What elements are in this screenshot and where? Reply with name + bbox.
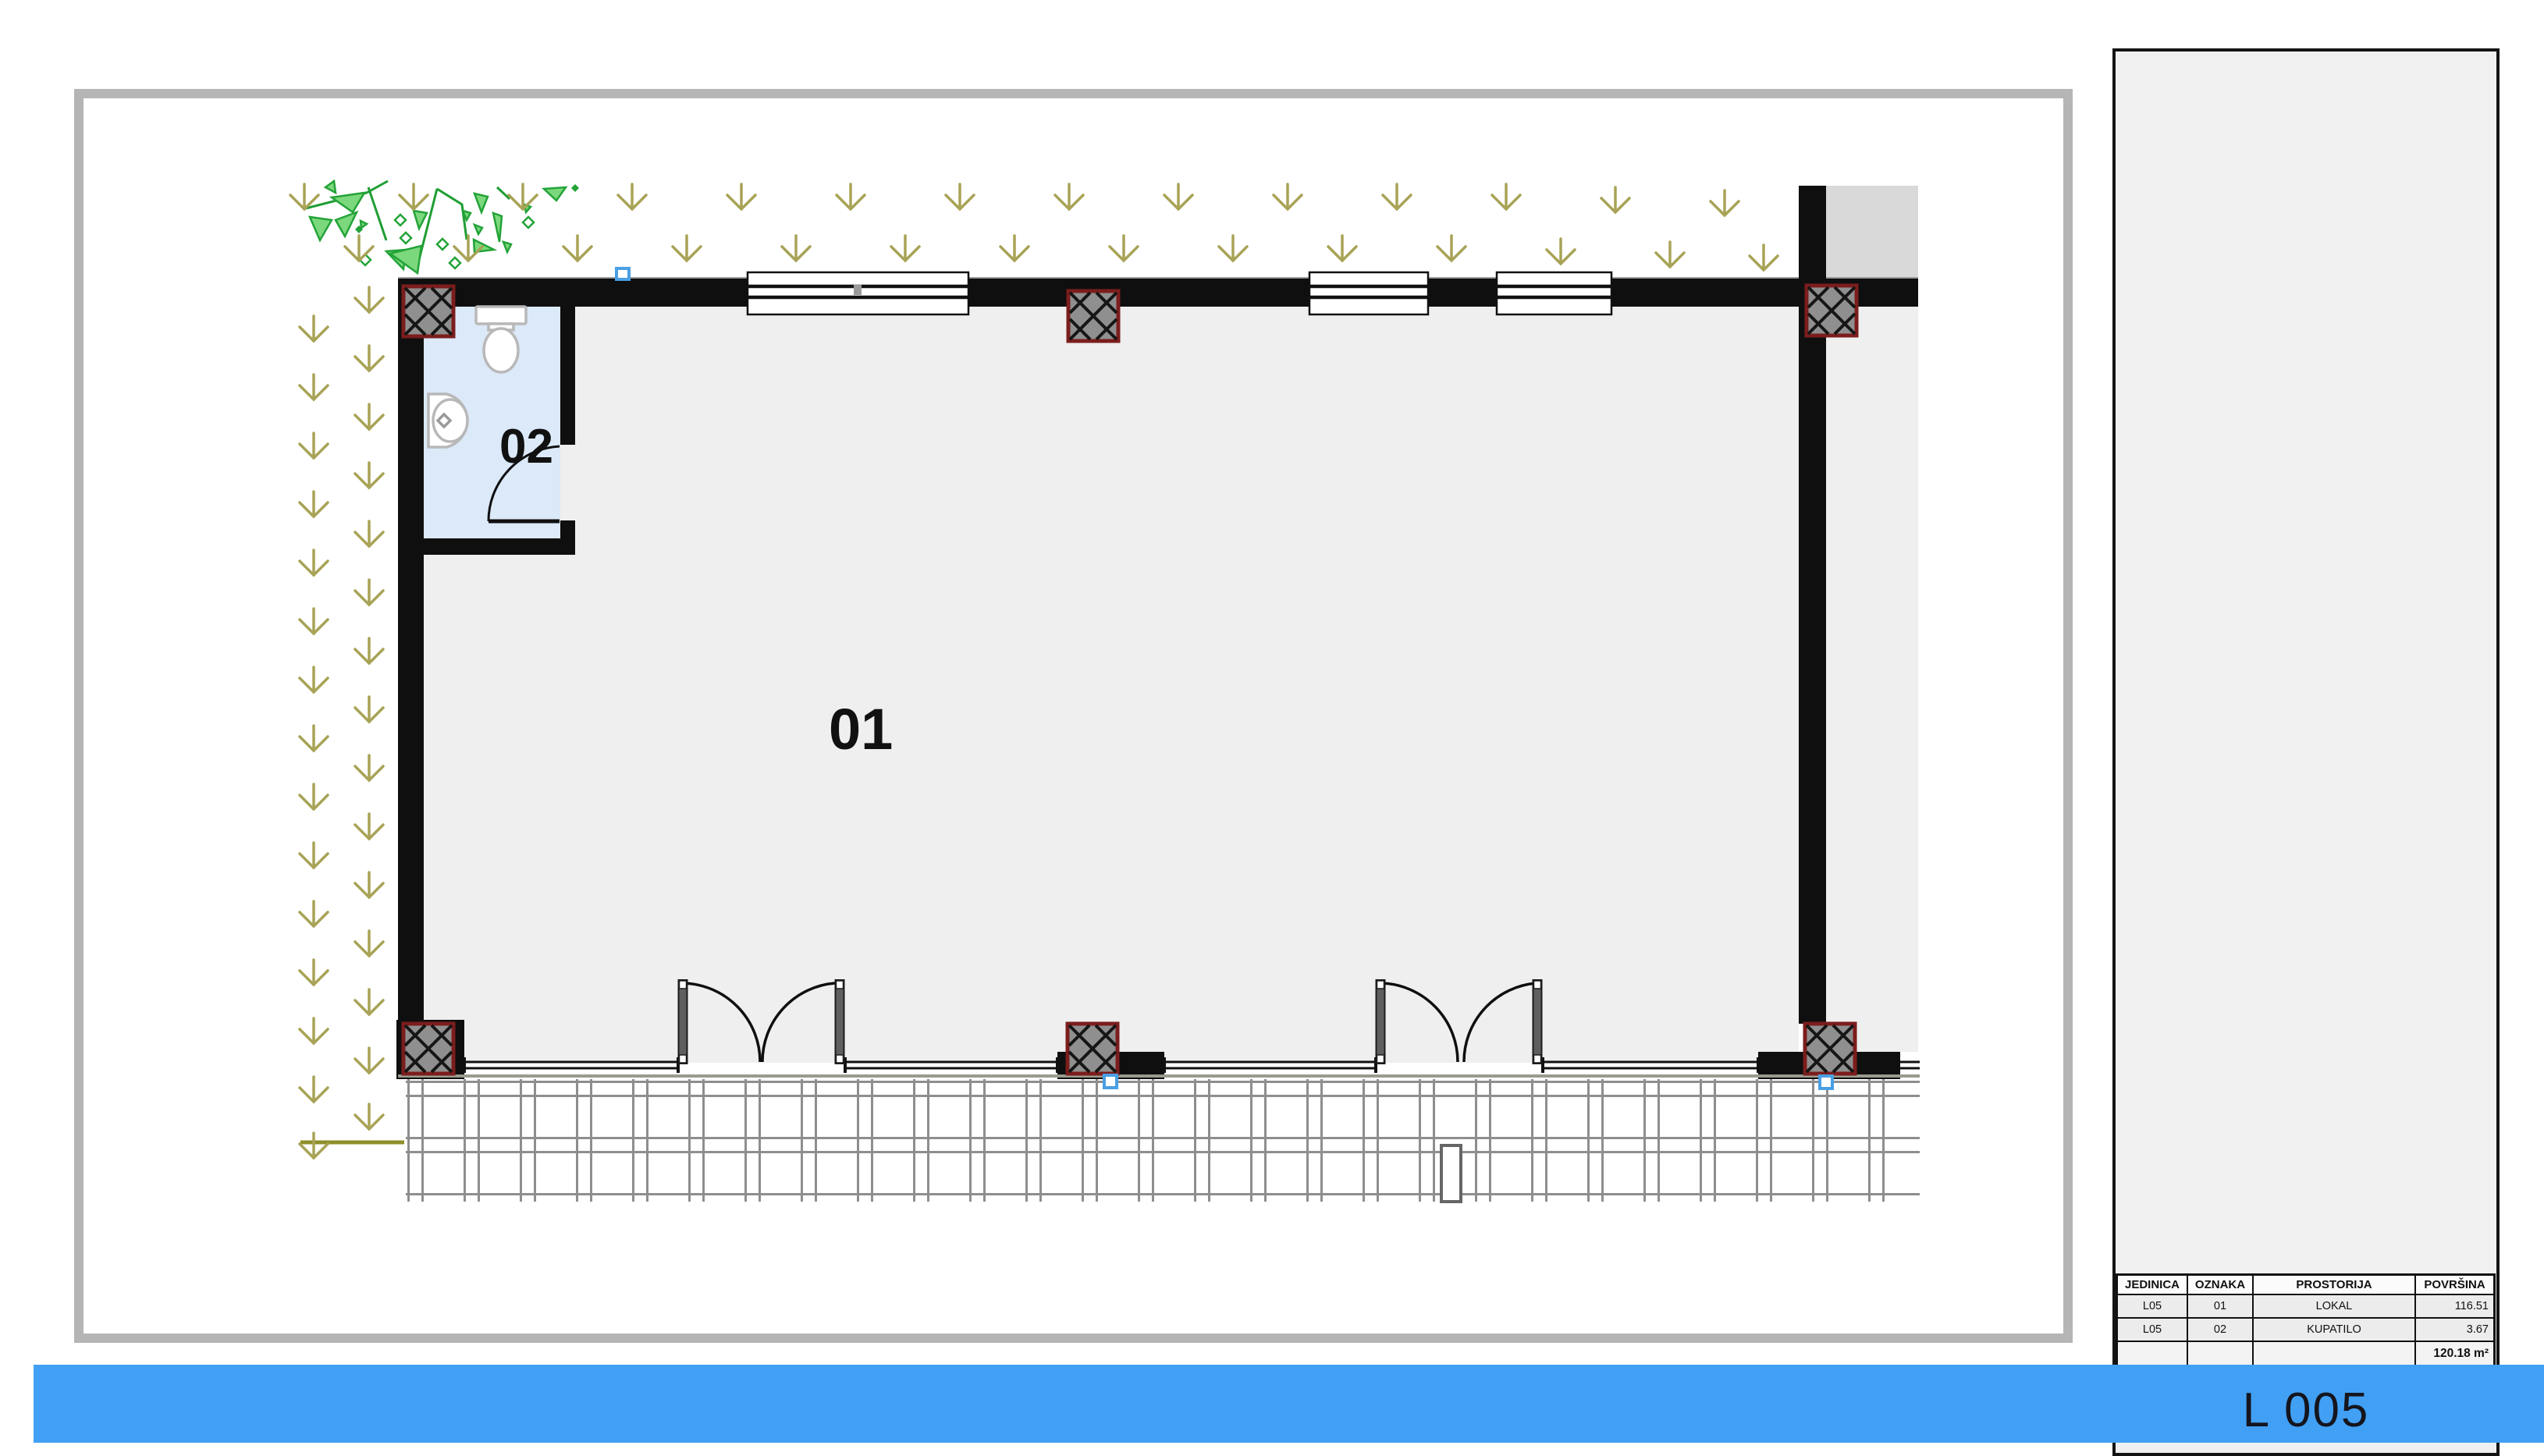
col-header-povrsina: POVRŠINA [2414, 1276, 2493, 1294]
cell-povrsina: 116.51 [2414, 1295, 2493, 1317]
table-row: L05 01 LOKAL 116.51 [2118, 1294, 2493, 1317]
column-symbol [1807, 286, 1856, 336]
bathroom-wall-bottom [424, 538, 575, 555]
cell-oznaka: 01 [2187, 1295, 2252, 1317]
room-label-01: 01 [829, 697, 893, 762]
table-total-row: 120.18 m² [2118, 1341, 2493, 1365]
titleblock-sidebar [2112, 48, 2500, 1456]
cell-jedinica: L05 [2118, 1319, 2187, 1341]
drawing-sheet: 01 02 JEDINICA OZNAKA PROSTORIJA POVRŠIN… [0, 0, 2544, 1456]
table-row: L05 02 KUPATILO 3.67 [2118, 1317, 2493, 1341]
room-label-02: 02 [499, 420, 553, 474]
col-header-oznaka: OZNAKA [2187, 1276, 2252, 1294]
cell-jedinica: L05 [2118, 1295, 2187, 1317]
cell-oznaka: 02 [2187, 1319, 2252, 1341]
col-header-jedinica: JEDINICA [2118, 1276, 2187, 1294]
column-symbol [403, 286, 453, 336]
neighbor-space [1826, 186, 1918, 281]
bathroom-wall-right [560, 307, 575, 445]
column-symbol [403, 1024, 453, 1074]
column-symbol [1068, 1024, 1117, 1074]
area-table: JEDINICA OZNAKA PROSTORIJA POVRŠINA L05 … [2116, 1273, 2496, 1367]
cell-prostorija: LOKAL [2252, 1295, 2414, 1317]
area-table-header-row: JEDINICA OZNAKA PROSTORIJA POVRŠINA [2118, 1276, 2493, 1294]
paving-pillar [1441, 1145, 1461, 1202]
total-area: 120.18 m² [2414, 1342, 2493, 1365]
unit-label: L 005 [2112, 1383, 2500, 1438]
paving [300, 1076, 1920, 1202]
sink-symbol [428, 394, 467, 447]
cell-prostorija: KUPATILO [2252, 1319, 2414, 1341]
column-symbol [1805, 1024, 1855, 1074]
col-header-prostorija: PROSTORIJA [2252, 1276, 2414, 1294]
column-symbol [1068, 291, 1118, 341]
cell-povrsina: 3.67 [2414, 1319, 2493, 1341]
floor-fills [424, 186, 1918, 1063]
